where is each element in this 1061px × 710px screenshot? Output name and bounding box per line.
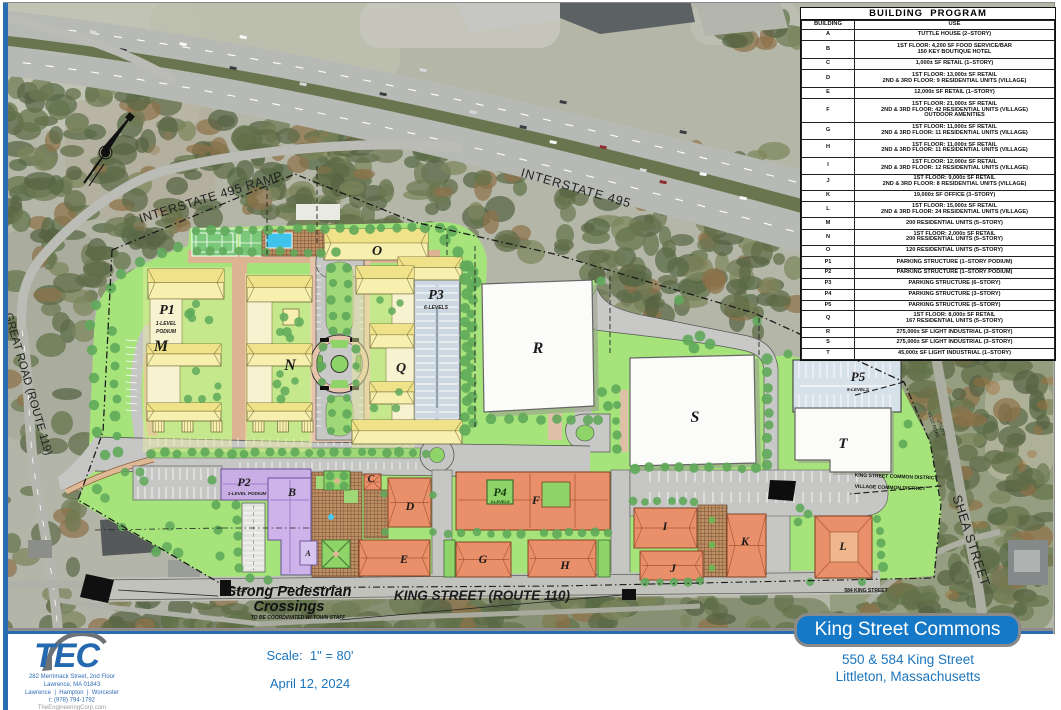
svg-text:t: (978) 794-1792: t: (978) 794-1792 — [49, 698, 96, 704]
svg-text:N: N — [283, 357, 297, 374]
svg-text:S: S — [691, 409, 700, 426]
svg-text:TheEngineeringCorp.com: TheEngineeringCorp.com — [38, 705, 106, 710]
svg-text:6-LEVELS: 6-LEVELS — [424, 305, 449, 311]
svg-text:5-LEVELS: 5-LEVELS — [847, 387, 870, 392]
svg-text:L: L — [838, 539, 846, 553]
svg-text:3-LEVELS: 3-LEVELS — [490, 499, 509, 504]
svg-text:Lawrence | Hampton | Worce: Lawrence | Hampton | Worcester — [25, 690, 119, 696]
svg-text:O: O — [372, 244, 382, 259]
svg-text:282 Merrimack Street, 2nd Floo: 282 Merrimack Street, 2nd Floor — [29, 674, 115, 680]
svg-text:K: K — [740, 534, 750, 548]
svg-text:Q: Q — [396, 361, 406, 376]
svg-text:584 KING STREET: 584 KING STREET — [844, 588, 887, 594]
svg-text:Lawrence, MA 01843: Lawrence, MA 01843 — [44, 682, 101, 688]
svg-text:Strong Pedestrian: Strong Pedestrian — [227, 584, 352, 600]
svg-text:H: H — [559, 558, 570, 572]
svg-text:A: A — [304, 549, 311, 558]
svg-text:Crossings: Crossings — [254, 599, 325, 615]
svg-text:E: E — [399, 552, 408, 566]
svg-text:M: M — [153, 338, 169, 355]
svg-text:KING STREET (ROUTE 110): KING STREET (ROUTE 110) — [394, 588, 571, 603]
svg-text:G: G — [479, 552, 488, 566]
svg-text:P1: P1 — [159, 303, 175, 318]
svg-text:P2: P2 — [237, 475, 250, 489]
svg-text:F: F — [531, 493, 540, 507]
svg-text:C: C — [368, 474, 375, 485]
svg-text:TO BE COORDINATED W/ TOWN STAF: TO BE COORDINATED W/ TOWN STAFF — [251, 615, 347, 621]
svg-text:P5: P5 — [851, 369, 866, 384]
svg-text:1-LEVEL PODIUM: 1-LEVEL PODIUM — [228, 491, 267, 496]
svg-text:P4: P4 — [493, 485, 506, 499]
svg-text:D: D — [405, 499, 415, 513]
svg-text:R: R — [532, 340, 544, 357]
svg-text:J: J — [669, 561, 677, 575]
svg-text:1-LEVEL: 1-LEVEL — [156, 321, 177, 327]
svg-text:PODIUM: PODIUM — [156, 329, 177, 335]
svg-text:P3: P3 — [428, 288, 444, 303]
svg-text:B: B — [287, 485, 296, 499]
svg-text:T: T — [838, 436, 848, 452]
svg-text:TEC: TEC — [34, 637, 100, 675]
